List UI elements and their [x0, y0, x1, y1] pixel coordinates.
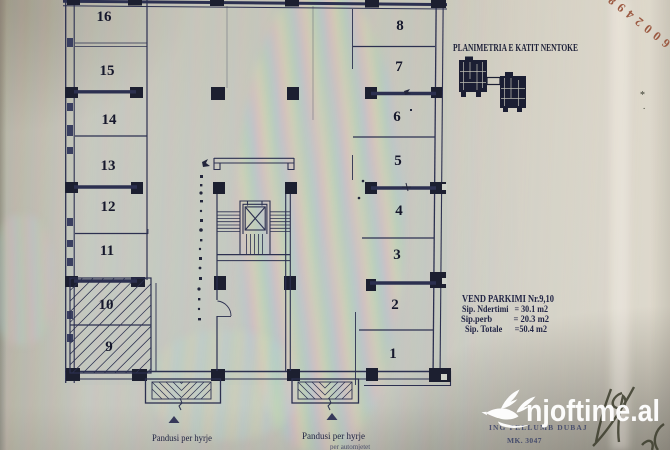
svg-text:1: 1	[389, 346, 397, 362]
svg-text:6: 6	[393, 109, 401, 125]
svg-text:njoftime.al: njoftime.al	[526, 394, 660, 428]
svg-text:Pandusi per hyrje: Pandusi per hyrje	[152, 433, 212, 443]
svg-text:16: 16	[97, 9, 113, 25]
svg-text:3: 3	[393, 247, 401, 263]
svg-text:*: *	[640, 90, 645, 101]
svg-text:per automjetet: per automjetet	[330, 443, 370, 450]
svg-text:VEND PARKIMI Nr.9,10: VEND PARKIMI Nr.9,10	[462, 294, 554, 305]
svg-text:12: 12	[101, 199, 116, 215]
svg-text:11: 11	[100, 243, 114, 259]
svg-text:2: 2	[391, 297, 399, 313]
svg-text:10: 10	[99, 297, 114, 313]
svg-text:8: 8	[396, 18, 404, 34]
svg-text:14: 14	[102, 112, 118, 128]
svg-text:15: 15	[100, 63, 115, 79]
svg-text:4: 4	[395, 203, 403, 219]
svg-text:5: 5	[394, 153, 402, 169]
svg-text:MK. 3047: MK. 3047	[507, 436, 542, 445]
svg-text:7: 7	[395, 59, 403, 75]
svg-text:Sip. Ndertimi = 30.1 m2: Sip. Ndertimi = 30.1 m2	[462, 305, 548, 315]
svg-text:6002498: 6002498	[601, 0, 670, 51]
svg-text:Sip.perb = 20.3 m2: Sip.perb = 20.3 m2	[461, 315, 549, 325]
svg-text:9: 9	[105, 339, 113, 355]
svg-text:13: 13	[101, 158, 116, 174]
svg-text:PLANIMETRIA E KATIT NENTOKE: PLANIMETRIA E KATIT NENTOKE	[453, 43, 578, 54]
svg-text:.: .	[643, 101, 645, 111]
svg-text:Sip. Totale =50.4 m2: Sip. Totale =50.4 m2	[465, 325, 547, 335]
svg-text:Pandusi per hyrje: Pandusi per hyrje	[302, 431, 365, 441]
